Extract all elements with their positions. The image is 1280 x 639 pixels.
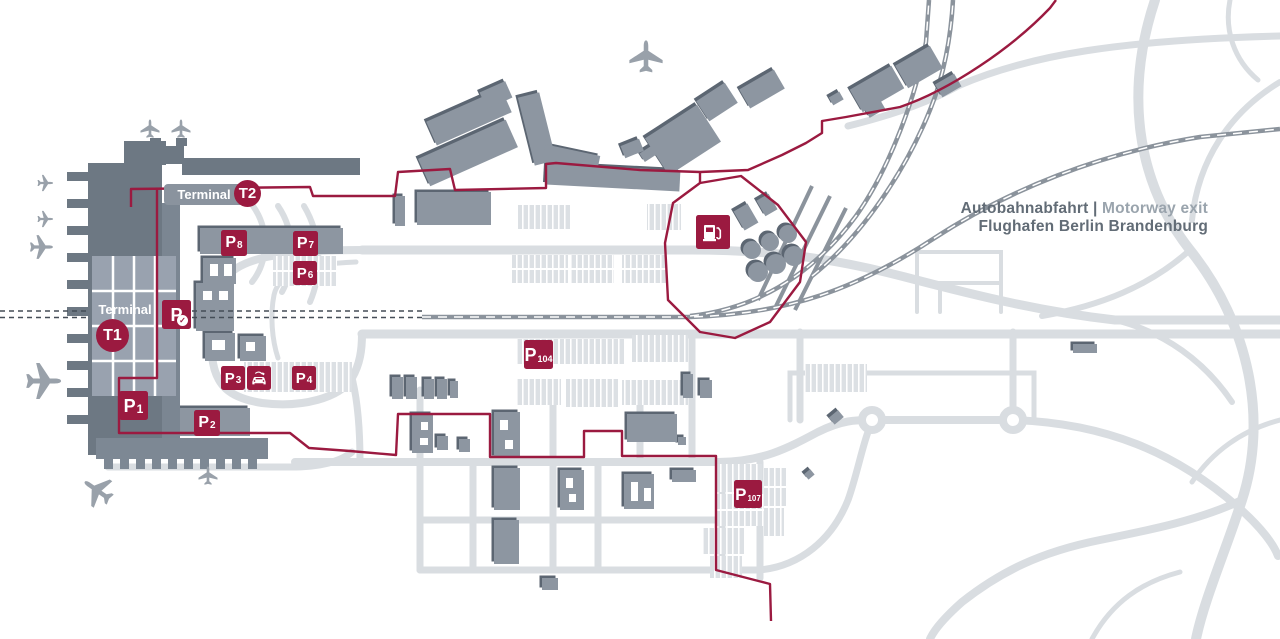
badge-letter: P — [124, 397, 136, 415]
parking-badge-p1[interactable]: P1 — [119, 391, 148, 420]
badge-number: 6 — [308, 271, 314, 281]
terminal-t2-text: Terminal — [177, 187, 230, 202]
fuel-pump-icon — [702, 221, 724, 243]
parking-badge-p8[interactable]: P8 — [221, 230, 247, 256]
parking-badge-p-check[interactable]: P✓ — [162, 300, 191, 329]
e-charging-parking-marker[interactable] — [247, 366, 271, 390]
motorway-exit-label: Autobahnabfahrt | Motorway exit Flughafe… — [961, 200, 1208, 236]
badge-letter: P — [297, 266, 307, 281]
badge-number: 104 — [537, 355, 552, 364]
badge-number: 4 — [307, 376, 313, 386]
badge-letter: P — [296, 371, 306, 386]
badge-letter: P — [225, 371, 235, 386]
badge-letter: P — [735, 486, 746, 503]
terminal-t2-bar: Terminal — [164, 184, 244, 205]
fuel-station-marker[interactable] — [696, 215, 730, 249]
terminal-t1-text: Terminal — [88, 302, 162, 317]
parking-badge-p6[interactable]: P6 — [293, 261, 317, 285]
badge-number: 7 — [309, 241, 315, 251]
airport-map: Terminal T2 Terminal T1 P8P7P6P✓P3P4P1P2… — [0, 0, 1280, 639]
parking-badge-p3[interactable]: P3 — [221, 366, 245, 390]
motorway-exit-line2: Flughafen Berlin Brandenburg — [961, 218, 1208, 236]
badge-number: 2 — [210, 421, 216, 431]
markers-overlay: Terminal T2 Terminal T1 P8P7P6P✓P3P4P1P2… — [0, 0, 1280, 639]
parking-badge-p2[interactable]: P2 — [194, 410, 220, 436]
badge-letter: P — [524, 346, 536, 364]
terminal-t1-label[interactable]: Terminal T1 — [88, 302, 162, 352]
motorway-exit-line1: Autobahnabfahrt | Motorway exit — [961, 200, 1208, 218]
terminal-t2-badge: T2 — [234, 180, 261, 207]
badge-number: 107 — [747, 495, 760, 503]
parking-badge-p107[interactable]: P107 — [734, 480, 762, 508]
badge-letter: P — [297, 236, 308, 252]
parking-badge-p4[interactable]: P4 — [292, 366, 316, 390]
terminal-t1-badge: T1 — [96, 319, 129, 352]
badge-number: 1 — [137, 403, 144, 415]
electric-car-icon — [249, 368, 269, 388]
terminal-t2-label[interactable]: Terminal T2 — [164, 183, 274, 211]
badge-number: 3 — [236, 376, 242, 386]
check-icon: ✓ — [177, 315, 188, 326]
parking-badge-p104[interactable]: P104 — [524, 340, 553, 369]
badge-letter: P — [198, 415, 209, 431]
parking-badge-p7[interactable]: P7 — [293, 231, 318, 256]
badge-letter: P — [225, 235, 236, 251]
badge-number: 8 — [237, 241, 243, 251]
